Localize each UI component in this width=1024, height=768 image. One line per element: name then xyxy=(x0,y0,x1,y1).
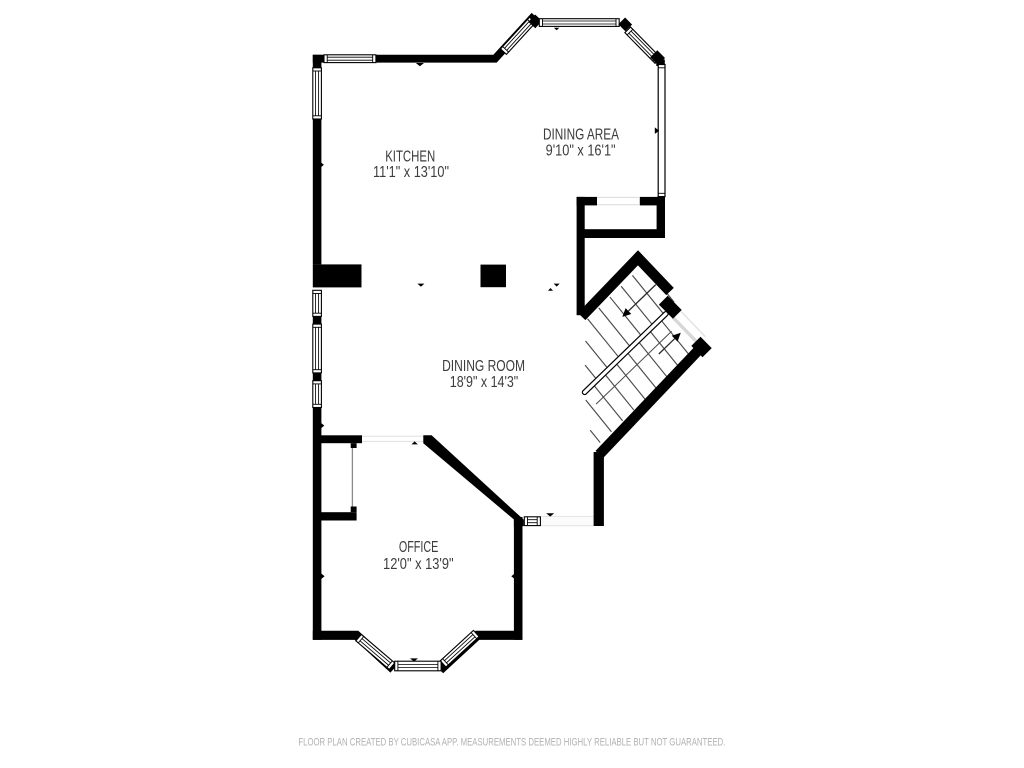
svg-text:9'10" x 16'1": 9'10" x 16'1" xyxy=(546,142,616,159)
svg-text:FLOOR PLAN CREATED BY CUBICASA: FLOOR PLAN CREATED BY CUBICASA APP. MEAS… xyxy=(298,736,725,748)
svg-text:KITCHEN: KITCHEN xyxy=(385,149,435,166)
svg-text:DINING ROOM: DINING ROOM xyxy=(442,358,525,375)
svg-text:12'0" x 13'9": 12'0" x 13'9" xyxy=(383,556,454,573)
svg-text:OFFICE: OFFICE xyxy=(399,539,439,556)
svg-text:DINING AREA: DINING AREA xyxy=(543,127,620,144)
svg-text:18'9" x 14'3": 18'9" x 14'3" xyxy=(450,374,519,391)
svg-text:11'1" x 13'10": 11'1" x 13'10" xyxy=(373,164,449,181)
